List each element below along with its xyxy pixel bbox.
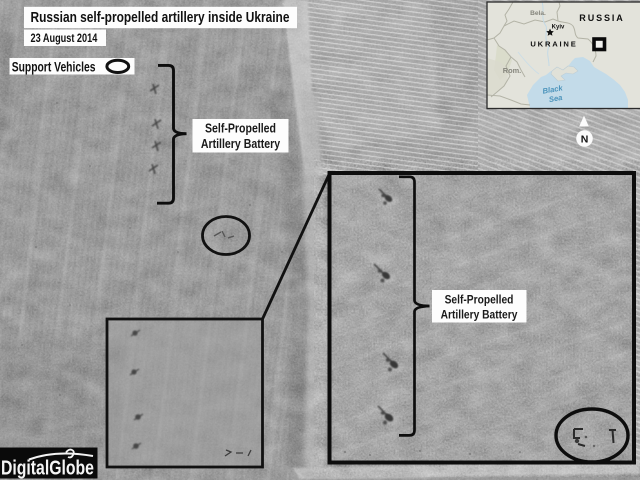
svg-text:RUSSIA: RUSSIA [579,13,624,23]
svg-text:N: N [581,133,589,145]
svg-text:Rom.: Rom. [503,66,521,75]
svg-text:Kyiv: Kyiv [552,25,565,31]
svg-text:Self-Propelled: Self-Propelled [445,294,514,307]
svg-text:Support Vehicles: Support Vehicles [12,59,96,75]
svg-text:Artillery Battery: Artillery Battery [441,309,518,322]
svg-text:Artillery Battery: Artillery Battery [201,137,281,151]
svg-text:23 August 2014: 23 August 2014 [31,33,98,45]
svg-text:Self-Propelled: Self-Propelled [205,122,276,136]
svg-text:Bela.: Bela. [530,10,546,17]
svg-text:Russian self-propelled artill: Russian self-propelled artillery inside … [31,9,290,26]
svg-text:DigitalGlobe: DigitalGlobe [1,455,94,479]
svg-text:UKRAINE: UKRAINE [530,40,577,49]
